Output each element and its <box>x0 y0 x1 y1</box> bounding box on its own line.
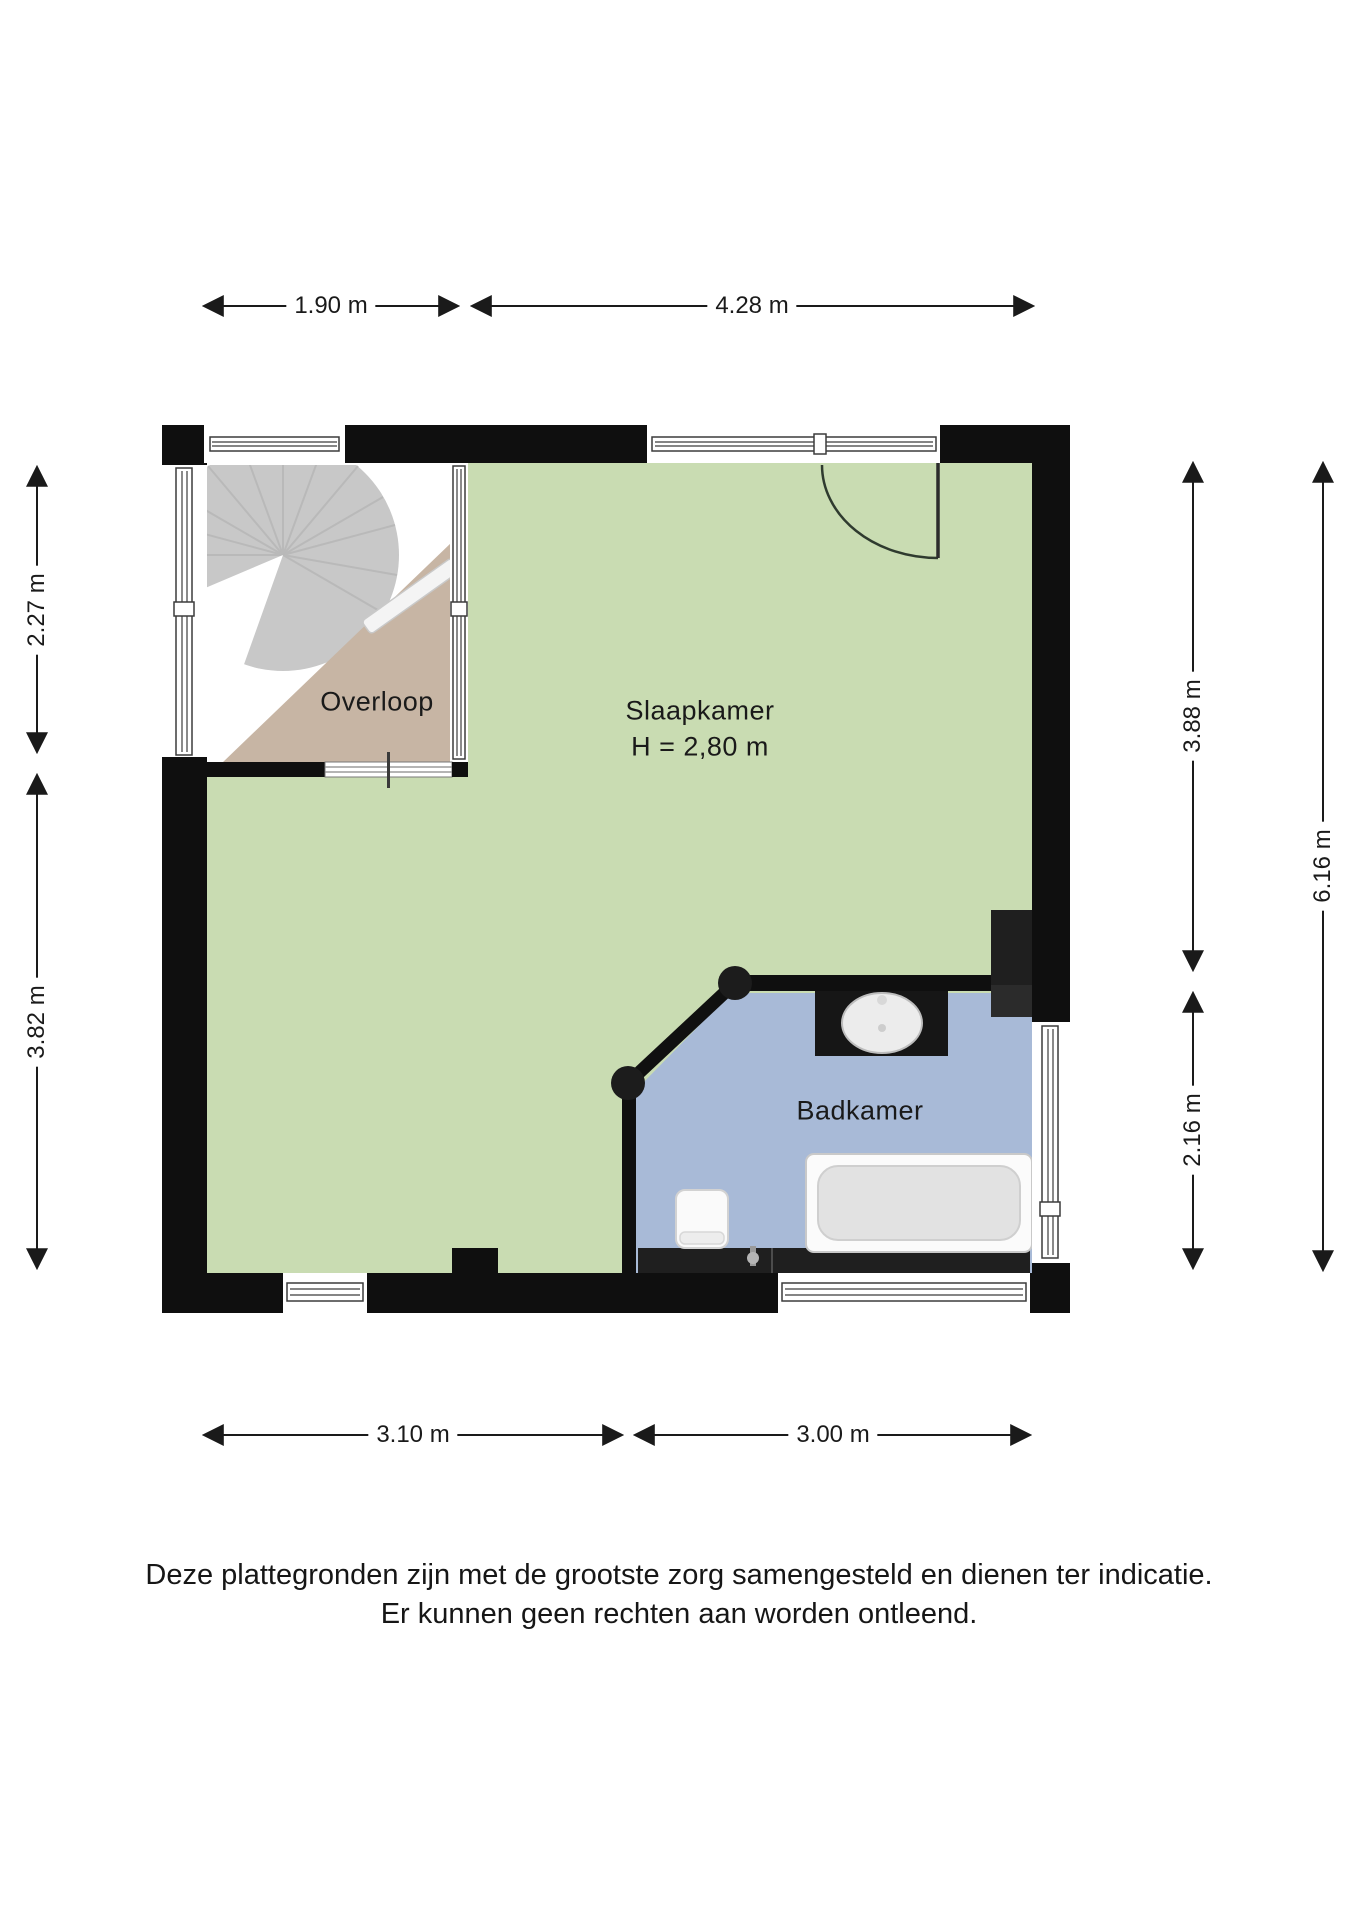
dim-label-left-2: 3.82 m <box>23 977 51 1066</box>
left-wall-corner <box>162 425 207 465</box>
dim-label-top-1: 1.90 m <box>286 292 375 320</box>
bathroom-west-wall <box>622 1083 636 1273</box>
dim-label-right-2: 2.16 m <box>1179 1085 1207 1174</box>
bathroom-north-wall <box>735 975 991 991</box>
window-top-right <box>647 425 940 463</box>
window-bottom-right <box>778 1273 1030 1313</box>
window-right <box>1032 1022 1070 1263</box>
room-label-badkamer: Badkamer <box>796 1096 923 1127</box>
glass-partition <box>450 463 468 763</box>
wall-post <box>611 1066 645 1100</box>
bathtub <box>806 1154 1032 1252</box>
room-label-overloop: Overloop <box>320 687 434 718</box>
wall-post <box>718 966 752 1000</box>
wall-stub <box>452 1248 498 1273</box>
dim-label-bottom-2: 3.00 m <box>788 1421 877 1449</box>
window-mullion <box>174 602 194 616</box>
disclaimer: Deze plattegronden zijn met de grootste … <box>0 1556 1358 1634</box>
basin-faucet-icon <box>877 995 887 1005</box>
basin-drain-icon <box>878 1024 886 1032</box>
dim-label-right-3: 6.16 m <box>1309 821 1337 910</box>
floor-plan: Overloop Slaapkamer H = 2,80 m Badkamer … <box>0 0 1358 1920</box>
disclaimer-line-1: Deze plattegronden zijn met de grootste … <box>0 1556 1358 1595</box>
dim-label-bottom-1: 3.10 m <box>368 1421 457 1449</box>
room-label-slaapkamer: Slaapkamer <box>625 696 774 727</box>
window-bottom-left <box>283 1273 367 1313</box>
disclaimer-line-2: Er kunnen geen rechten aan worden ontlee… <box>0 1595 1358 1634</box>
washbasin-counter <box>815 991 948 1056</box>
window-mullion <box>1040 1202 1060 1216</box>
door-marker <box>387 752 390 788</box>
window-mullion <box>451 602 467 616</box>
dim-label-right-1: 3.88 m <box>1179 671 1207 760</box>
dim-label-top-2: 4.28 m <box>707 292 796 320</box>
left-wall <box>162 755 207 1313</box>
toilet <box>676 1190 728 1248</box>
chimney-block-lower <box>991 985 1032 1017</box>
window-top-left <box>204 425 345 463</box>
window-mullion <box>814 434 826 454</box>
window-left <box>162 465 207 757</box>
dim-label-left-1: 2.27 m <box>23 565 51 654</box>
room-ceiling-height: H = 2,80 m <box>631 732 769 763</box>
